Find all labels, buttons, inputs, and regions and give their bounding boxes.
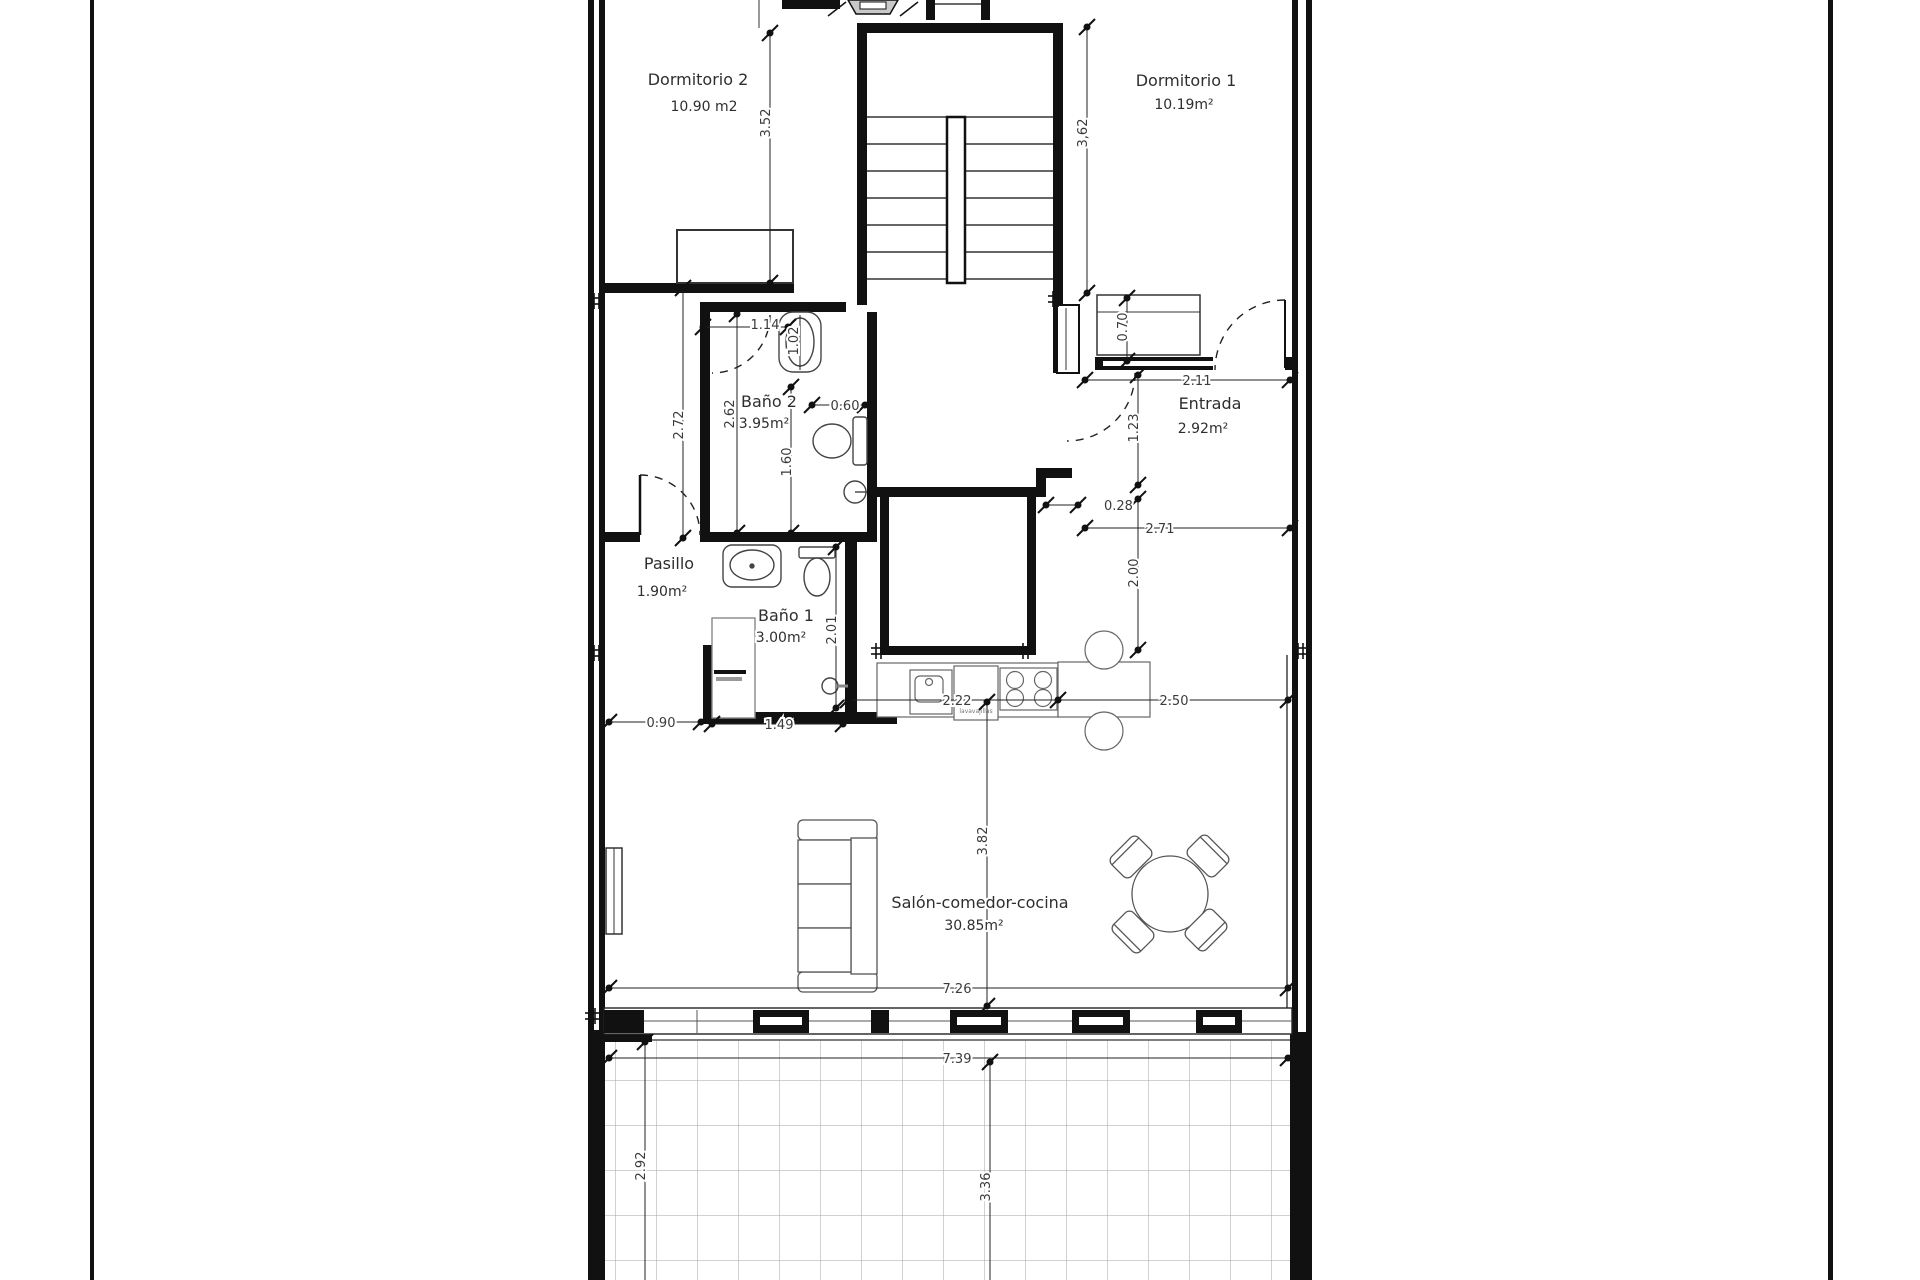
wall-dorm1-south-a bbox=[1095, 357, 1213, 361]
stair-wall-top bbox=[857, 23, 1063, 33]
dim-label-2-92: 2.92 bbox=[634, 1152, 649, 1181]
dim-label-2-00: 2.00 bbox=[1127, 559, 1142, 588]
dim-label-1-23: 1.23 bbox=[1127, 414, 1142, 443]
wall-shaft-right bbox=[1027, 487, 1036, 655]
landing-door-panel bbox=[860, 2, 886, 9]
panel-slot bbox=[760, 1017, 802, 1025]
dim-label-2-11: 2.11 bbox=[1183, 374, 1212, 389]
dim-label-2-72: 2.72 bbox=[672, 411, 687, 440]
dim-label-2-50: 2.50 bbox=[1160, 694, 1189, 709]
bar-stool bbox=[1085, 712, 1123, 750]
wall-dorm1-south-end bbox=[1285, 357, 1292, 370]
room-labels: Dormitorio 2 10.90 m2 Dormitorio 1 10.19… bbox=[637, 70, 1242, 934]
room-area-pasillo: 1.90m² bbox=[637, 584, 687, 600]
wall-bano1-east bbox=[845, 542, 857, 722]
kitchen-tap-icon bbox=[926, 679, 933, 686]
room-label-dormitorio2: Dormitorio 2 bbox=[648, 70, 749, 89]
wall-dorm1-south-cap bbox=[1095, 357, 1103, 370]
sofa-seat bbox=[798, 884, 851, 928]
glazed-post bbox=[871, 1010, 889, 1033]
doorway-jamb-left bbox=[926, 0, 935, 20]
room-area-entrada: 2.92m² bbox=[1178, 421, 1228, 437]
pasillo-door-arc bbox=[640, 475, 700, 535]
sofa-seat bbox=[798, 840, 851, 884]
dim-label-2-22: 2.22 bbox=[943, 694, 972, 709]
entrance-door-arc bbox=[1067, 373, 1135, 441]
dim-label-0-28: 0.28 bbox=[1104, 499, 1133, 514]
terrace-tile-grid bbox=[604, 1040, 1292, 1280]
room-area-bano2: 3.95m² bbox=[739, 416, 789, 432]
dim-label-0-90: 0.90 bbox=[647, 716, 676, 731]
glazed-panel bbox=[604, 1010, 644, 1033]
cut-wall-stub-left bbox=[782, 0, 840, 9]
dishwasher-label: lavavajillas bbox=[959, 708, 992, 715]
peninsula-counter bbox=[1058, 662, 1150, 717]
dim-label-2-01: 2.01 bbox=[825, 616, 840, 645]
page-frame-left bbox=[90, 0, 94, 1280]
dim-label-7-26: 7.26 bbox=[943, 982, 972, 997]
wall-bano2-north bbox=[700, 302, 846, 312]
staircase bbox=[867, 117, 1053, 283]
wall-hall-stub bbox=[867, 487, 880, 497]
wall-shaft-left bbox=[880, 487, 889, 655]
room-label-bano1: Baño 1 bbox=[758, 606, 814, 625]
hob-burner bbox=[1035, 672, 1052, 689]
exterior-wall-left-outer bbox=[588, 0, 594, 1280]
bar-stool bbox=[1085, 631, 1123, 669]
shower-drain-bar bbox=[714, 670, 746, 674]
dim-label-1-60: 1.60 bbox=[780, 448, 795, 477]
dim-label-2-62: 2.62 bbox=[723, 400, 738, 429]
sofa-armrest bbox=[798, 972, 877, 992]
wall-shaft-top bbox=[880, 487, 1036, 497]
stair-wall-left bbox=[857, 23, 867, 305]
dim-label-7-39: 7.39 bbox=[943, 1052, 972, 1067]
wall-entry-stub-h bbox=[1046, 468, 1072, 478]
exterior-wall-right-outer bbox=[1306, 0, 1312, 1280]
room-area-dormitorio2: 10.90 m2 bbox=[670, 99, 737, 115]
entrance-door-leaf-icon bbox=[1057, 305, 1079, 373]
dorm2-closet bbox=[677, 230, 793, 283]
builtins bbox=[606, 230, 1200, 934]
dim-label-3-62: 3,62 bbox=[1076, 119, 1091, 148]
doorway-jamb-right bbox=[981, 0, 990, 20]
panel-slot bbox=[1079, 1017, 1123, 1025]
dim-label-1-49: 1.49 bbox=[765, 718, 794, 733]
room-label-salon: Salón-comedor-cocina bbox=[891, 893, 1068, 912]
exterior-wall-left-inner bbox=[599, 0, 605, 1280]
room-label-bano2: Baño 2 bbox=[741, 392, 797, 411]
room-label-pasillo: Pasillo bbox=[644, 554, 694, 573]
hob-burner bbox=[1007, 690, 1024, 707]
shower-label-mark bbox=[716, 677, 742, 681]
page-frame-right bbox=[1828, 0, 1833, 1280]
exterior-wall-right-inner bbox=[1292, 0, 1298, 1280]
hob-burner bbox=[1007, 672, 1024, 689]
room-area-dormitorio1: 10.19m² bbox=[1154, 97, 1213, 113]
dorm1-door-arc bbox=[1215, 300, 1285, 370]
room-area-bano1: 3.00m² bbox=[756, 630, 806, 646]
toilet1-icon bbox=[804, 558, 830, 596]
terrace bbox=[588, 1030, 1312, 1280]
dim-label-0-70: 0.70 bbox=[1116, 313, 1131, 342]
wall-pasillo-stub bbox=[604, 532, 640, 542]
wall-bano2-west bbox=[700, 302, 710, 532]
bathroom-fixtures bbox=[712, 312, 867, 718]
hob-burner bbox=[1035, 690, 1052, 707]
sofa-back bbox=[851, 838, 877, 974]
wall-dorm1-south-b bbox=[1095, 366, 1213, 370]
dim-label-0-60: 0.60 bbox=[831, 399, 860, 414]
panel-slot bbox=[1203, 1017, 1235, 1025]
dim-label-1-02: 1.02 bbox=[787, 327, 802, 356]
drawing-sheet: lavavajillas bbox=[0, 0, 1920, 1280]
dorm1-wardrobe bbox=[1097, 295, 1200, 355]
wall-entry-stub-v bbox=[1036, 468, 1046, 497]
floor-plan-svg: lavavajillas bbox=[0, 0, 1920, 1280]
door-swing-mark-right bbox=[900, 2, 918, 16]
room-label-entrada: Entrada bbox=[1179, 394, 1242, 413]
toilet2-icon bbox=[813, 424, 851, 458]
dim-label-3-52: 3.52 bbox=[759, 109, 774, 138]
dim-label-3-82: 3.82 bbox=[976, 827, 991, 856]
dim-label-2-71: 2.71 bbox=[1146, 522, 1175, 537]
room-area-salon: 30.85m² bbox=[944, 918, 1003, 934]
stair-divider-wall bbox=[947, 117, 965, 283]
dim-label-1-14: 1.14 bbox=[751, 318, 780, 333]
sofa-armrest bbox=[798, 820, 877, 840]
room-label-dormitorio1: Dormitorio 1 bbox=[1136, 71, 1237, 90]
window-band bbox=[604, 1008, 1292, 1034]
wall-bano2-east bbox=[867, 312, 877, 532]
shower-tray bbox=[712, 618, 755, 718]
sofa-seat bbox=[798, 928, 851, 972]
sink1-drain bbox=[750, 564, 754, 568]
dim-label-3-36: 3.36 bbox=[979, 1173, 994, 1202]
panel-slot bbox=[957, 1017, 1001, 1025]
toilet2-tank bbox=[853, 417, 867, 465]
